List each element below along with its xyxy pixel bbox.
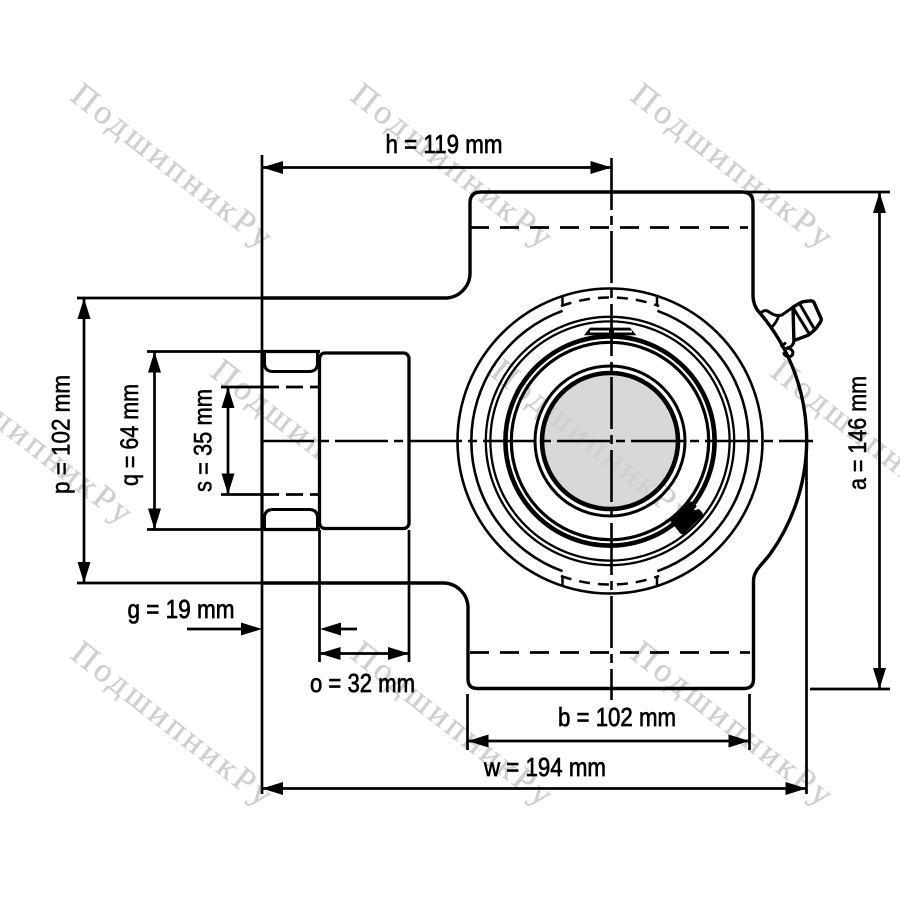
- svg-text:w = 194 mm: w = 194 mm: [483, 752, 606, 782]
- svg-text:g = 19 mm: g = 19 mm: [128, 594, 235, 624]
- svg-text:o = 32 mm: o = 32 mm: [310, 668, 415, 698]
- svg-text:q = 64 mm: q = 64 mm: [116, 384, 144, 486]
- svg-text:a = 146 mm: a = 146 mm: [844, 376, 872, 490]
- svg-text:s = 35 mm: s = 35 mm: [190, 389, 218, 492]
- svg-text:p = 102 mm: p = 102 mm: [48, 375, 76, 494]
- svg-text:b = 102 mm: b = 102 mm: [558, 702, 676, 732]
- svg-text:h = 119 mm: h = 119 mm: [386, 129, 503, 159]
